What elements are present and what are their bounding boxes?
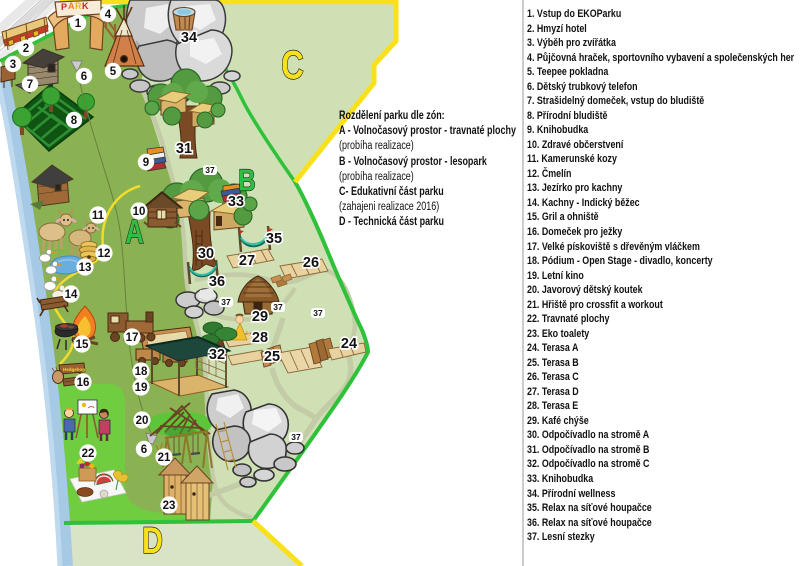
svg-text:37: 37	[273, 302, 283, 312]
svg-text:33: 33	[228, 194, 244, 210]
svg-text:37: 37	[205, 165, 215, 175]
svg-text:15: 15	[76, 339, 89, 351]
svg-text:18: 18	[135, 366, 148, 378]
svg-text:10: 10	[133, 206, 146, 218]
svg-text:37: 37	[221, 297, 231, 307]
svg-text:31: 31	[176, 141, 192, 157]
svg-text:1: 1	[75, 18, 82, 30]
svg-text:B: B	[238, 163, 255, 198]
svg-text:6: 6	[81, 71, 87, 83]
svg-text:19: 19	[135, 382, 148, 394]
svg-text:12: 12	[98, 248, 111, 260]
svg-text:37: 37	[291, 432, 301, 442]
svg-text:34: 34	[181, 30, 197, 46]
svg-text:21: 21	[158, 452, 171, 464]
svg-text:K: K	[82, 1, 89, 11]
svg-text:28: 28	[252, 330, 268, 346]
svg-text:22: 22	[82, 448, 95, 460]
svg-text:27: 27	[239, 253, 255, 269]
svg-text:5: 5	[110, 66, 117, 78]
svg-text:25: 25	[264, 349, 280, 365]
svg-text:24: 24	[341, 336, 357, 352]
svg-text:6: 6	[141, 444, 147, 456]
svg-text:35: 35	[266, 231, 282, 247]
svg-text:A: A	[125, 214, 144, 251]
svg-text:11: 11	[92, 210, 105, 222]
svg-text:2: 2	[23, 43, 29, 55]
svg-text:P: P	[61, 2, 67, 12]
svg-text:8: 8	[71, 115, 78, 127]
svg-text:32: 32	[209, 347, 225, 363]
svg-text:36: 36	[209, 274, 225, 290]
svg-text:R: R	[75, 1, 82, 11]
svg-text:20: 20	[136, 415, 149, 427]
svg-text:16: 16	[77, 377, 90, 389]
svg-text:7: 7	[27, 79, 33, 91]
svg-text:A: A	[68, 1, 75, 11]
svg-text:26: 26	[303, 255, 319, 271]
svg-text:3: 3	[10, 59, 16, 71]
svg-text:Hedgehog: Hedgehog	[63, 367, 85, 372]
svg-text:29: 29	[252, 309, 268, 325]
svg-text:4: 4	[105, 9, 112, 21]
svg-text:23: 23	[163, 500, 176, 512]
svg-text:C: C	[281, 43, 304, 88]
svg-text:30: 30	[198, 246, 214, 262]
svg-text:D: D	[142, 521, 163, 562]
svg-text:14: 14	[65, 289, 78, 301]
svg-text:9: 9	[143, 157, 149, 169]
svg-text:13: 13	[79, 262, 92, 274]
svg-text:17: 17	[126, 332, 139, 344]
svg-text:37: 37	[313, 308, 323, 318]
